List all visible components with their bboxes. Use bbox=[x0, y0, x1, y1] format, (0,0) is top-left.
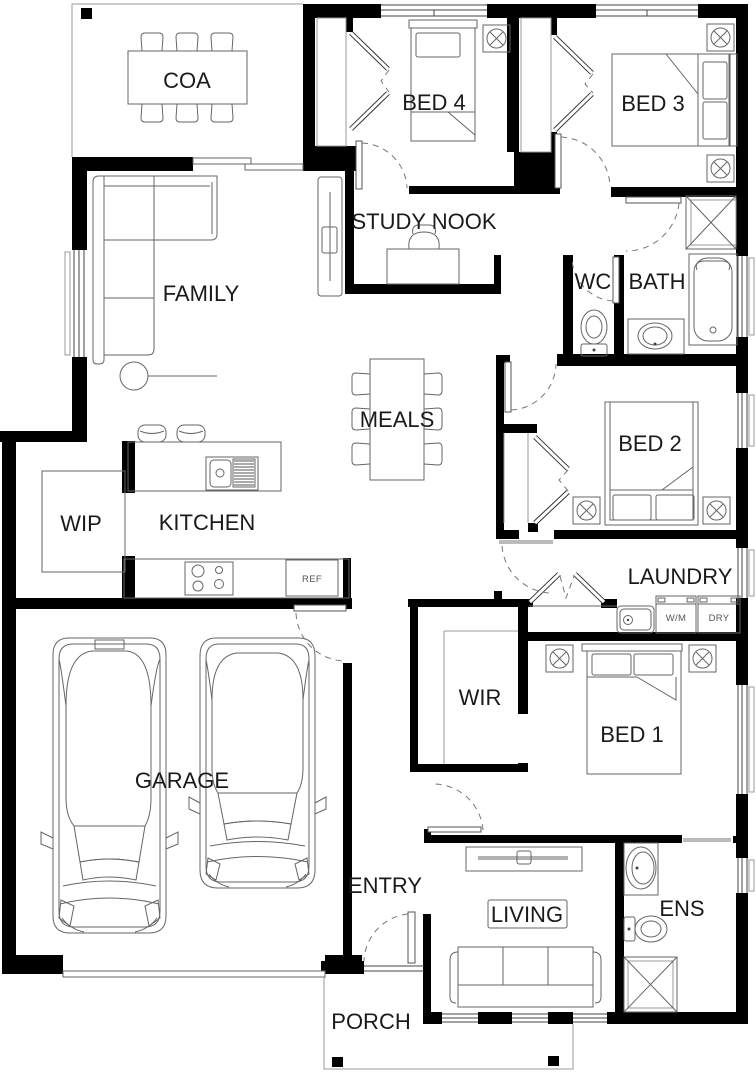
svg-text:MEALS: MEALS bbox=[360, 407, 435, 432]
svg-text:WC: WC bbox=[575, 269, 612, 294]
svg-text:ENTRY: ENTRY bbox=[348, 873, 422, 898]
svg-text:STUDY NOOK: STUDY NOOK bbox=[351, 209, 496, 234]
svg-text:LIVING: LIVING bbox=[491, 902, 563, 927]
svg-text:BED 2: BED 2 bbox=[618, 431, 682, 456]
svg-text:REF: REF bbox=[302, 574, 322, 585]
svg-text:BED 1: BED 1 bbox=[600, 722, 664, 747]
svg-text:BED 4: BED 4 bbox=[402, 90, 466, 115]
svg-text:BED 3: BED 3 bbox=[621, 91, 685, 116]
svg-text:COA: COA bbox=[163, 68, 211, 93]
svg-text:BATH: BATH bbox=[628, 269, 685, 294]
svg-text:KITCHEN: KITCHEN bbox=[159, 510, 256, 535]
svg-text:PORCH: PORCH bbox=[331, 1009, 410, 1034]
svg-text:FAMILY: FAMILY bbox=[163, 281, 240, 306]
svg-text:ENS: ENS bbox=[659, 896, 704, 921]
svg-text:LAUNDRY: LAUNDRY bbox=[628, 564, 733, 589]
svg-text:W/M: W/M bbox=[666, 613, 686, 624]
svg-text:GARAGE: GARAGE bbox=[135, 768, 229, 793]
svg-text:WIP: WIP bbox=[60, 511, 102, 536]
svg-text:DRY: DRY bbox=[709, 613, 730, 624]
svg-text:WIR: WIR bbox=[459, 685, 502, 710]
